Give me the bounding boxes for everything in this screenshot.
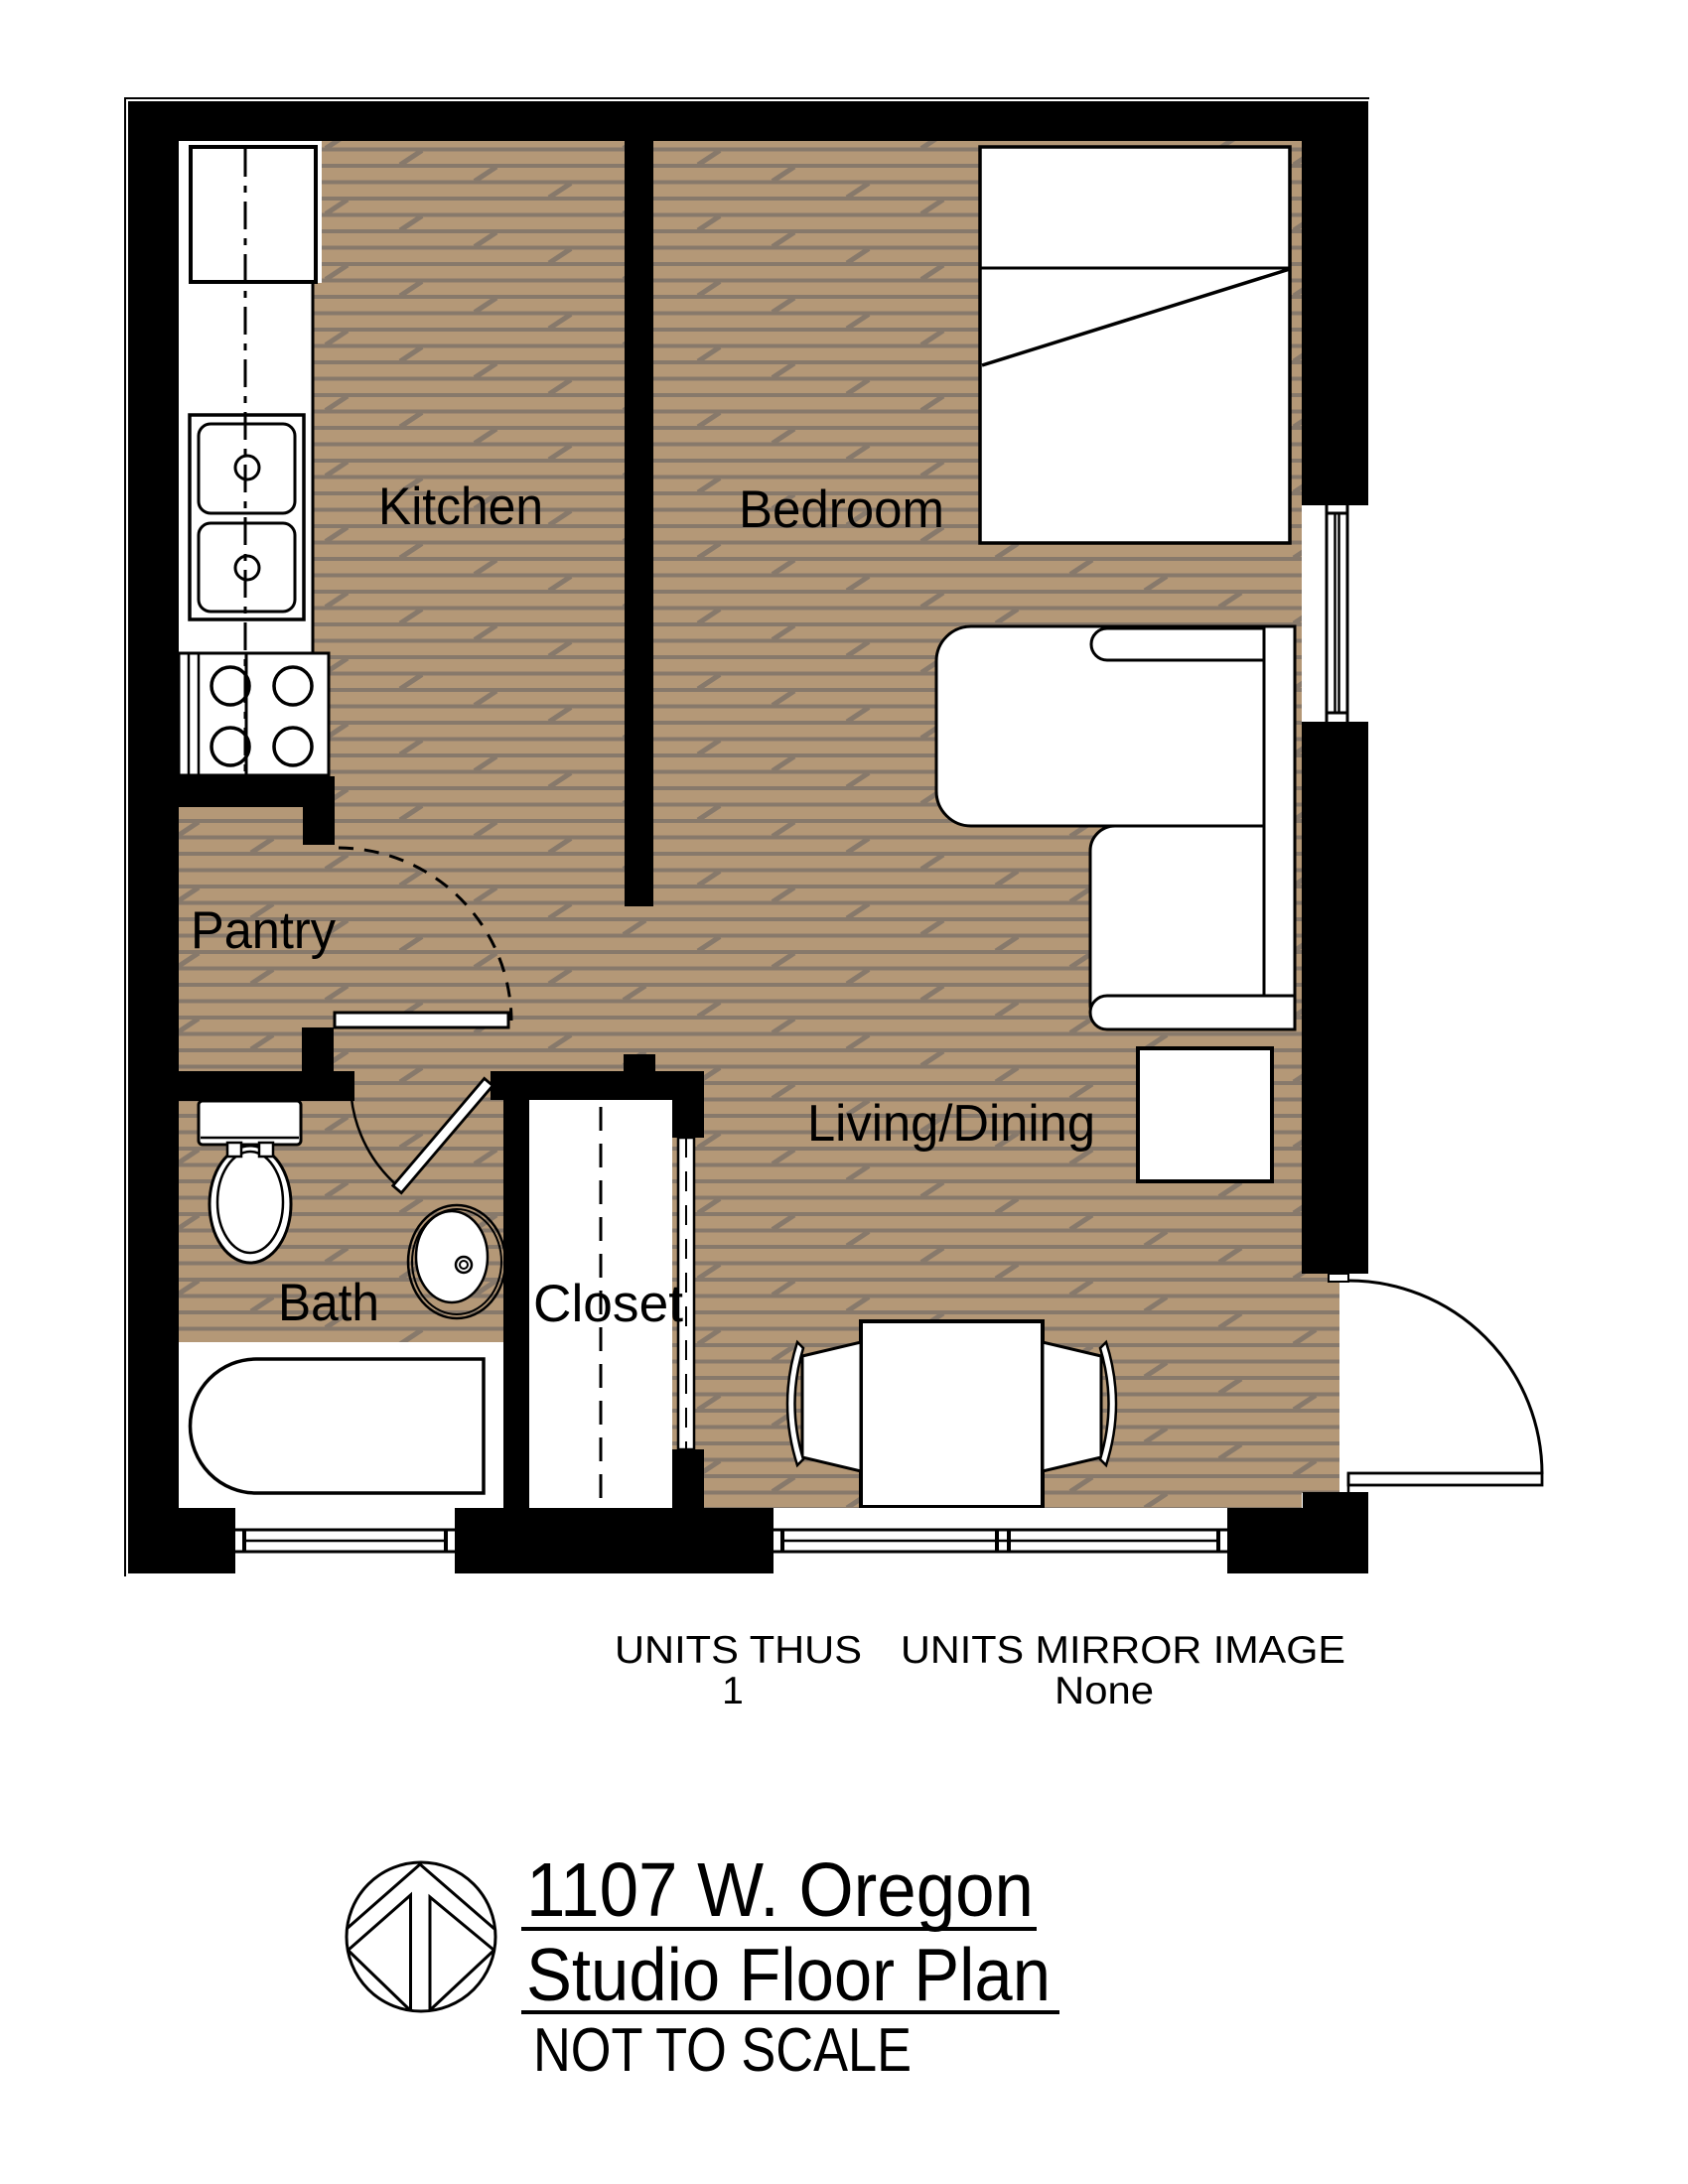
svg-text:None: None — [1055, 1670, 1154, 1712]
svg-text:UNITS THUS: UNITS THUS — [615, 1629, 862, 1672]
svg-text:UNITS MIRROR IMAGE: UNITS MIRROR IMAGE — [901, 1629, 1345, 1672]
svg-text:Kitchen: Kitchen — [378, 478, 543, 536]
svg-text:Bath: Bath — [278, 1274, 379, 1332]
svg-text:Bedroom: Bedroom — [739, 480, 944, 539]
svg-text:1107 W. Oregon: 1107 W. Oregon — [526, 1847, 1034, 1933]
svg-text:Studio Floor Plan: Studio Floor Plan — [526, 1933, 1051, 2016]
svg-text:Closet: Closet — [533, 1275, 683, 1333]
svg-text:NOT TO SCALE: NOT TO SCALE — [533, 2016, 912, 2085]
svg-text:1: 1 — [722, 1670, 744, 1712]
svg-text:Pantry: Pantry — [191, 901, 336, 960]
svg-text:Living/Dining: Living/Dining — [807, 1095, 1095, 1153]
